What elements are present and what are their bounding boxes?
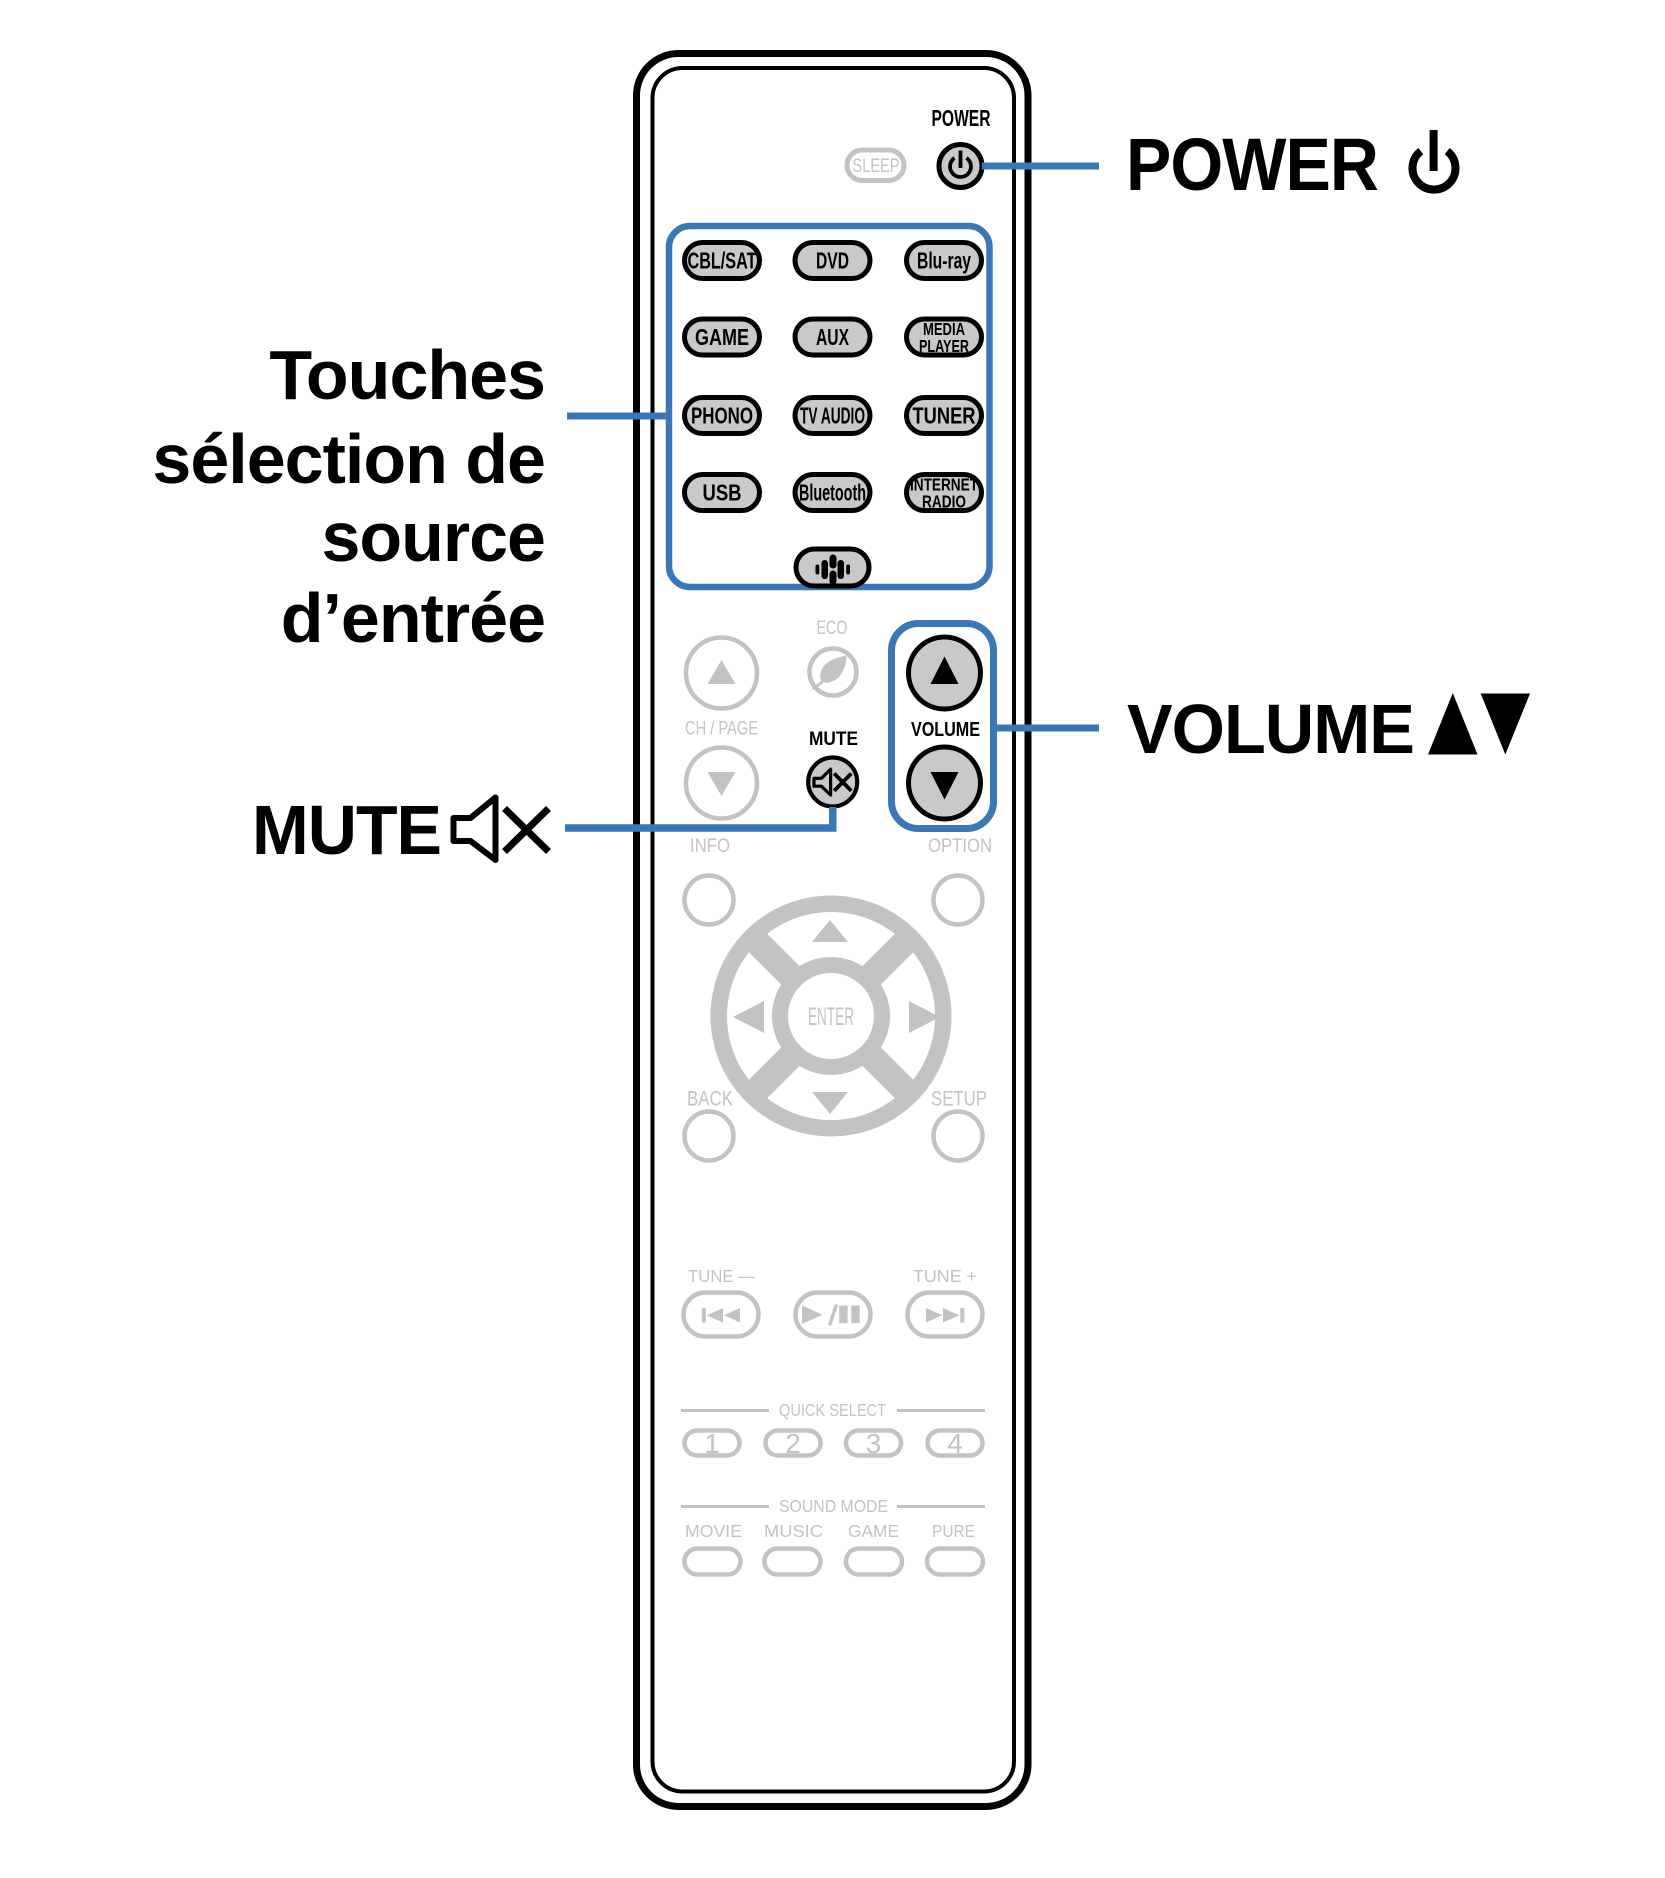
svg-text:INFO: INFO [690,836,730,857]
svg-text:Bluetooth: Bluetooth [799,480,866,506]
svg-text:CBL/SAT: CBL/SAT [688,248,757,274]
svg-text:MUSIC: MUSIC [764,1521,823,1541]
svg-text:POWER: POWER [1126,123,1378,206]
svg-text:TV AUDIO: TV AUDIO [800,403,865,429]
svg-text:QUICK SELECT: QUICK SELECT [779,1400,886,1420]
svg-text:OPTION: OPTION [928,836,992,857]
svg-text:USB: USB [703,480,742,506]
svg-text:d’entrée: d’entrée [281,579,545,657]
svg-text:CH / PAGE: CH / PAGE [685,718,758,740]
svg-text:TUNER: TUNER [913,403,976,429]
svg-text:MUTE: MUTE [809,728,858,750]
svg-text:GAME: GAME [695,324,749,350]
svg-text:VOLUME: VOLUME [1127,690,1414,768]
svg-text:VOLUME: VOLUME [911,719,980,741]
svg-text:1: 1 [704,1428,720,1459]
svg-text:POWER: POWER [932,105,991,131]
svg-text:PLAYER: PLAYER [919,336,969,356]
svg-text:PURE: PURE [932,1521,975,1541]
svg-text:Blu-ray: Blu-ray [917,248,971,274]
svg-text:MUTE: MUTE [252,791,441,869]
svg-text:3: 3 [866,1428,882,1459]
svg-text:GAME: GAME [848,1521,899,1541]
svg-text:PHONO: PHONO [691,403,753,429]
svg-text:ENTER: ENTER [808,1003,854,1031]
svg-text:ECO: ECO [817,617,848,639]
svg-text:AUX: AUX [816,324,849,350]
svg-text:SOUND MODE: SOUND MODE [779,1496,888,1516]
svg-text:TUNE +: TUNE + [913,1266,977,1286]
svg-text:SETUP: SETUP [931,1088,987,1111]
svg-text:TUNE —: TUNE — [688,1266,755,1286]
svg-text:source: source [321,498,545,576]
svg-text:4: 4 [947,1428,963,1459]
svg-text:DVD: DVD [816,248,849,274]
svg-text:Touches: Touches [269,336,545,414]
svg-text:RADIO: RADIO [922,492,966,512]
svg-text:MOVIE: MOVIE [685,1521,742,1541]
svg-text:BACK: BACK [687,1088,733,1111]
svg-text:2: 2 [785,1428,801,1459]
svg-text:sélection de: sélection de [152,420,545,498]
svg-text:SLEEP: SLEEP [853,156,900,177]
